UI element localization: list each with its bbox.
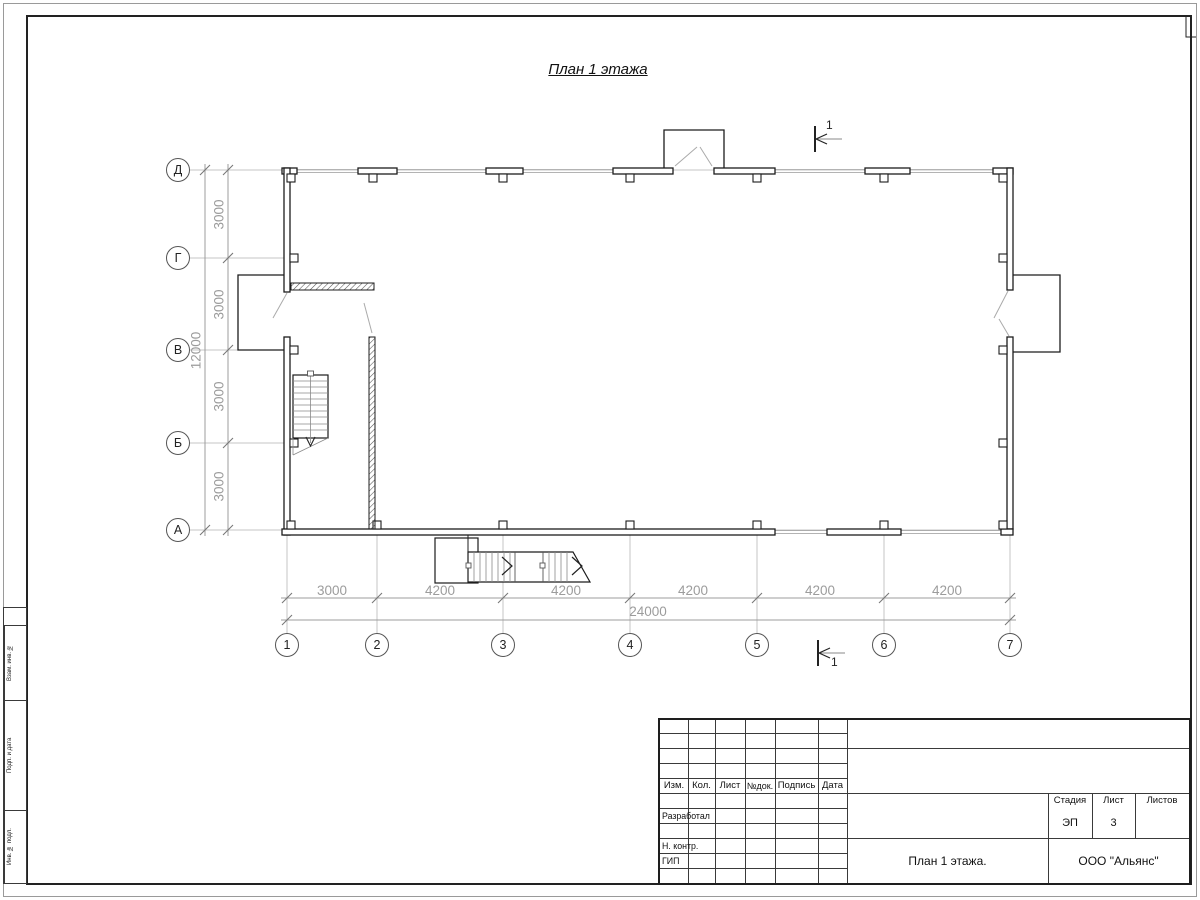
section-number-bottom: 1	[831, 655, 838, 669]
section-number-top: 1	[826, 118, 833, 132]
dimension-label: 4200	[907, 583, 987, 598]
tb-col-izm: Изм.	[660, 778, 688, 793]
dimension-label: 3000	[212, 447, 227, 527]
column-axis-bubble: 5	[745, 633, 769, 657]
door-leaves	[273, 291, 1009, 336]
dimension-label: 3000	[292, 583, 372, 598]
windows	[297, 170, 1001, 534]
tb-stage-value: ЭП	[1048, 808, 1092, 838]
column-axis-bubble: 2	[365, 633, 389, 657]
tb-row-developed: Разработал	[660, 808, 717, 823]
drawing-sheet: План 1 этажа 1 1 Д Г В Б А 1 2 3 4 5 6 7…	[0, 0, 1200, 900]
tb-drawing-name: План 1 этажа.	[847, 838, 1048, 883]
column-axis-bubble: 6	[872, 633, 896, 657]
dimension-label: 4200	[526, 583, 606, 598]
row-axis-bubble: Д	[166, 158, 190, 182]
side-stamp-box: Подп. и дата	[3, 700, 27, 811]
tb-col-doc: №док.	[745, 778, 775, 793]
tb-col-list: Лист	[715, 778, 745, 793]
side-stamp-label: Инв. № подл.	[4, 811, 15, 883]
tb-row-gip: ГИП	[660, 853, 717, 868]
dimension-label: 3000	[212, 357, 227, 437]
pilasters	[287, 174, 1007, 529]
exterior-walls	[282, 168, 1013, 535]
drawing-title: План 1 этажа	[498, 61, 698, 78]
dimension-label: 4200	[653, 583, 733, 598]
row-axis-bubble: В	[166, 338, 190, 362]
column-axis-bubble: 3	[491, 633, 515, 657]
side-stamp-label: Взам. инв. №	[4, 626, 15, 700]
title-block: Изм. Кол. Лист №док. Подпись Дата Разраб…	[658, 718, 1191, 885]
tb-sheet-value: 3	[1092, 808, 1135, 838]
tb-col-kol: Кол.	[688, 778, 715, 793]
entrance-stairs	[435, 535, 590, 583]
tb-col-date: Дата	[818, 778, 847, 793]
side-stamp-box: Взам. инв. №	[3, 625, 27, 701]
dimension-label: 3000	[212, 265, 227, 345]
row-axis-bubble: Г	[166, 246, 190, 270]
dimension-total-label: 24000	[608, 604, 688, 619]
dimension-label: 3000	[212, 175, 227, 255]
tb-row-ncontrol: Н. контр.	[660, 838, 717, 853]
row-axis-bubble: А	[166, 518, 190, 542]
tb-sheet-label: Лист	[1092, 793, 1135, 808]
tb-company: ООО "Альянс"	[1048, 838, 1189, 883]
tb-sheets-label: Листов	[1135, 793, 1189, 808]
vestibule	[664, 130, 724, 168]
dimension-total-label: 12000	[189, 311, 204, 391]
column-axis-bubble: 4	[618, 633, 642, 657]
side-stamp-box	[3, 607, 27, 626]
tb-stage-label: Стадия	[1048, 793, 1092, 808]
side-stamp-box: Инв. № подл.	[3, 810, 27, 884]
row-axis-bubble: Б	[166, 431, 190, 455]
tb-sheets-value	[1135, 808, 1189, 838]
column-axis-bubble: 7	[998, 633, 1022, 657]
side-stamp-label: Подп. и дата	[4, 701, 15, 810]
dimension-label: 4200	[780, 583, 860, 598]
dimension-label: 4200	[400, 583, 480, 598]
tb-col-sign: Подпись	[775, 778, 818, 793]
column-axis-bubble: 1	[275, 633, 299, 657]
